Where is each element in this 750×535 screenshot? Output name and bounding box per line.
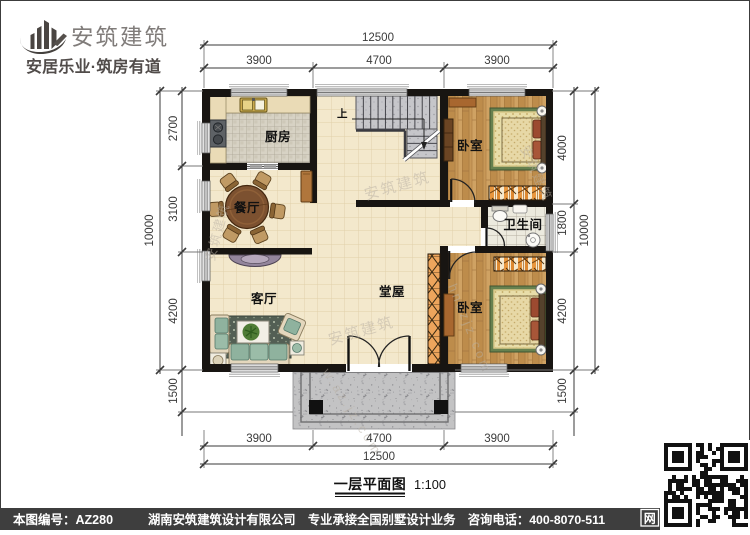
svg-text:卧室: 卧室 xyxy=(457,300,483,315)
svg-text:堂屋: 堂屋 xyxy=(379,284,405,299)
svg-text:网: 网 xyxy=(644,512,656,526)
svg-text:3100: 3100 xyxy=(168,196,180,222)
svg-text:3900: 3900 xyxy=(484,433,510,445)
svg-text:厨房: 厨房 xyxy=(265,129,291,144)
svg-text:12500: 12500 xyxy=(363,451,395,463)
svg-text:客厅: 客厅 xyxy=(250,291,277,306)
svg-text:湖南安筑建筑设计有限公司 专业承接全国别墅设计业务 咨询电话: 湖南安筑建筑设计有限公司 专业承接全国别墅设计业务 咨询电话：400-8070-… xyxy=(148,512,605,527)
svg-text:1500: 1500 xyxy=(557,378,569,404)
svg-text:4200: 4200 xyxy=(168,298,180,324)
svg-text:3900: 3900 xyxy=(246,55,272,67)
svg-text:3900: 3900 xyxy=(246,433,272,445)
svg-text:10000: 10000 xyxy=(579,215,591,247)
svg-text:一层平面图: 一层平面图 xyxy=(334,476,407,492)
svg-text:4000: 4000 xyxy=(557,135,569,161)
svg-text:2700: 2700 xyxy=(168,116,180,142)
svg-text:安居乐业·筑房有道: 安居乐业·筑房有道 xyxy=(26,57,161,76)
svg-text:卧室: 卧室 xyxy=(457,138,483,153)
svg-text:1:100: 1:100 xyxy=(414,477,446,492)
svg-text:4700: 4700 xyxy=(366,433,392,445)
svg-text:4700: 4700 xyxy=(366,55,392,67)
svg-text:10000: 10000 xyxy=(144,215,156,247)
svg-text:安筑建筑: 安筑建筑 xyxy=(71,25,169,50)
svg-text:卫生间: 卫生间 xyxy=(503,217,542,232)
svg-text:4200: 4200 xyxy=(557,298,569,324)
svg-text:上: 上 xyxy=(337,107,348,120)
svg-text:1800: 1800 xyxy=(557,210,569,236)
svg-text:12500: 12500 xyxy=(362,32,394,44)
svg-text:本图编号：AZ280: 本图编号：AZ280 xyxy=(13,512,113,527)
svg-text:3900: 3900 xyxy=(484,55,510,67)
svg-text:1500: 1500 xyxy=(168,378,180,404)
svg-text:餐厅: 餐厅 xyxy=(233,200,260,215)
